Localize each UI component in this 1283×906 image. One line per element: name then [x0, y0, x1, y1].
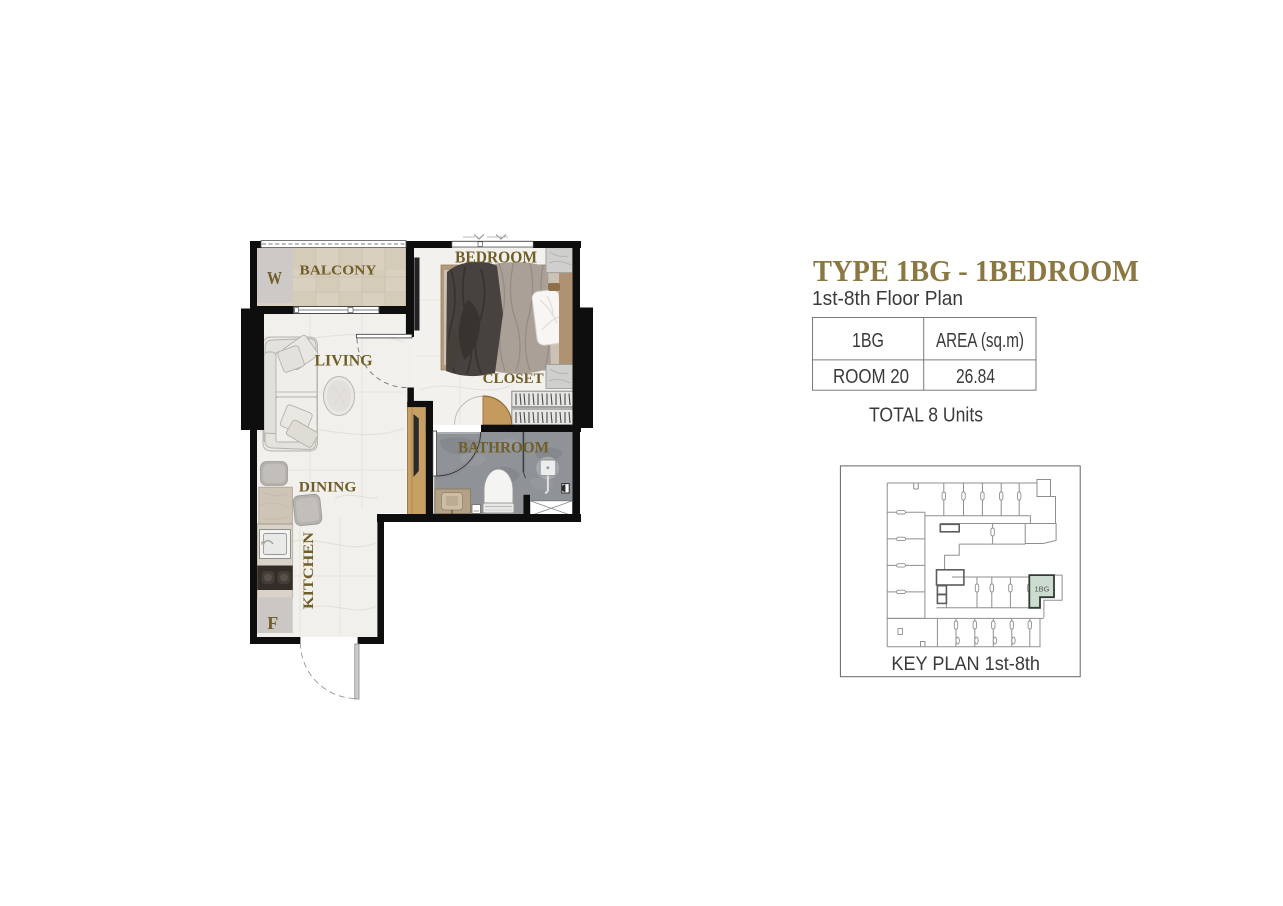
svg-text:TOTAL 8 Units: TOTAL 8 Units	[869, 404, 983, 427]
svg-text:BATHROOM: BATHROOM	[458, 440, 549, 457]
svg-text:ROOM 20: ROOM 20	[833, 366, 909, 388]
svg-text:KEY PLAN 1st-8th: KEY PLAN 1st-8th	[891, 653, 1040, 675]
svg-text:1BG: 1BG	[1034, 585, 1049, 594]
svg-text:CLOSET: CLOSET	[483, 371, 544, 387]
svg-text:W: W	[267, 268, 282, 288]
svg-text:LIVING: LIVING	[315, 353, 374, 370]
svg-text:F: F	[267, 613, 278, 633]
svg-text:BALCONY: BALCONY	[300, 263, 377, 278]
svg-text:TYPE 1BG - 1BEDROOM: TYPE 1BG - 1BEDROOM	[813, 253, 1139, 288]
svg-text:1st-8th Floor Plan: 1st-8th Floor Plan	[812, 287, 963, 310]
svg-text:DINING: DINING	[299, 480, 357, 496]
svg-text:1BG: 1BG	[852, 330, 884, 352]
svg-text:26.84: 26.84	[956, 366, 995, 388]
svg-text:AREA (sq.m): AREA (sq.m)	[936, 330, 1024, 352]
svg-text:KITCHEN: KITCHEN	[301, 532, 317, 609]
svg-text:BEDROOM: BEDROOM	[455, 248, 537, 267]
